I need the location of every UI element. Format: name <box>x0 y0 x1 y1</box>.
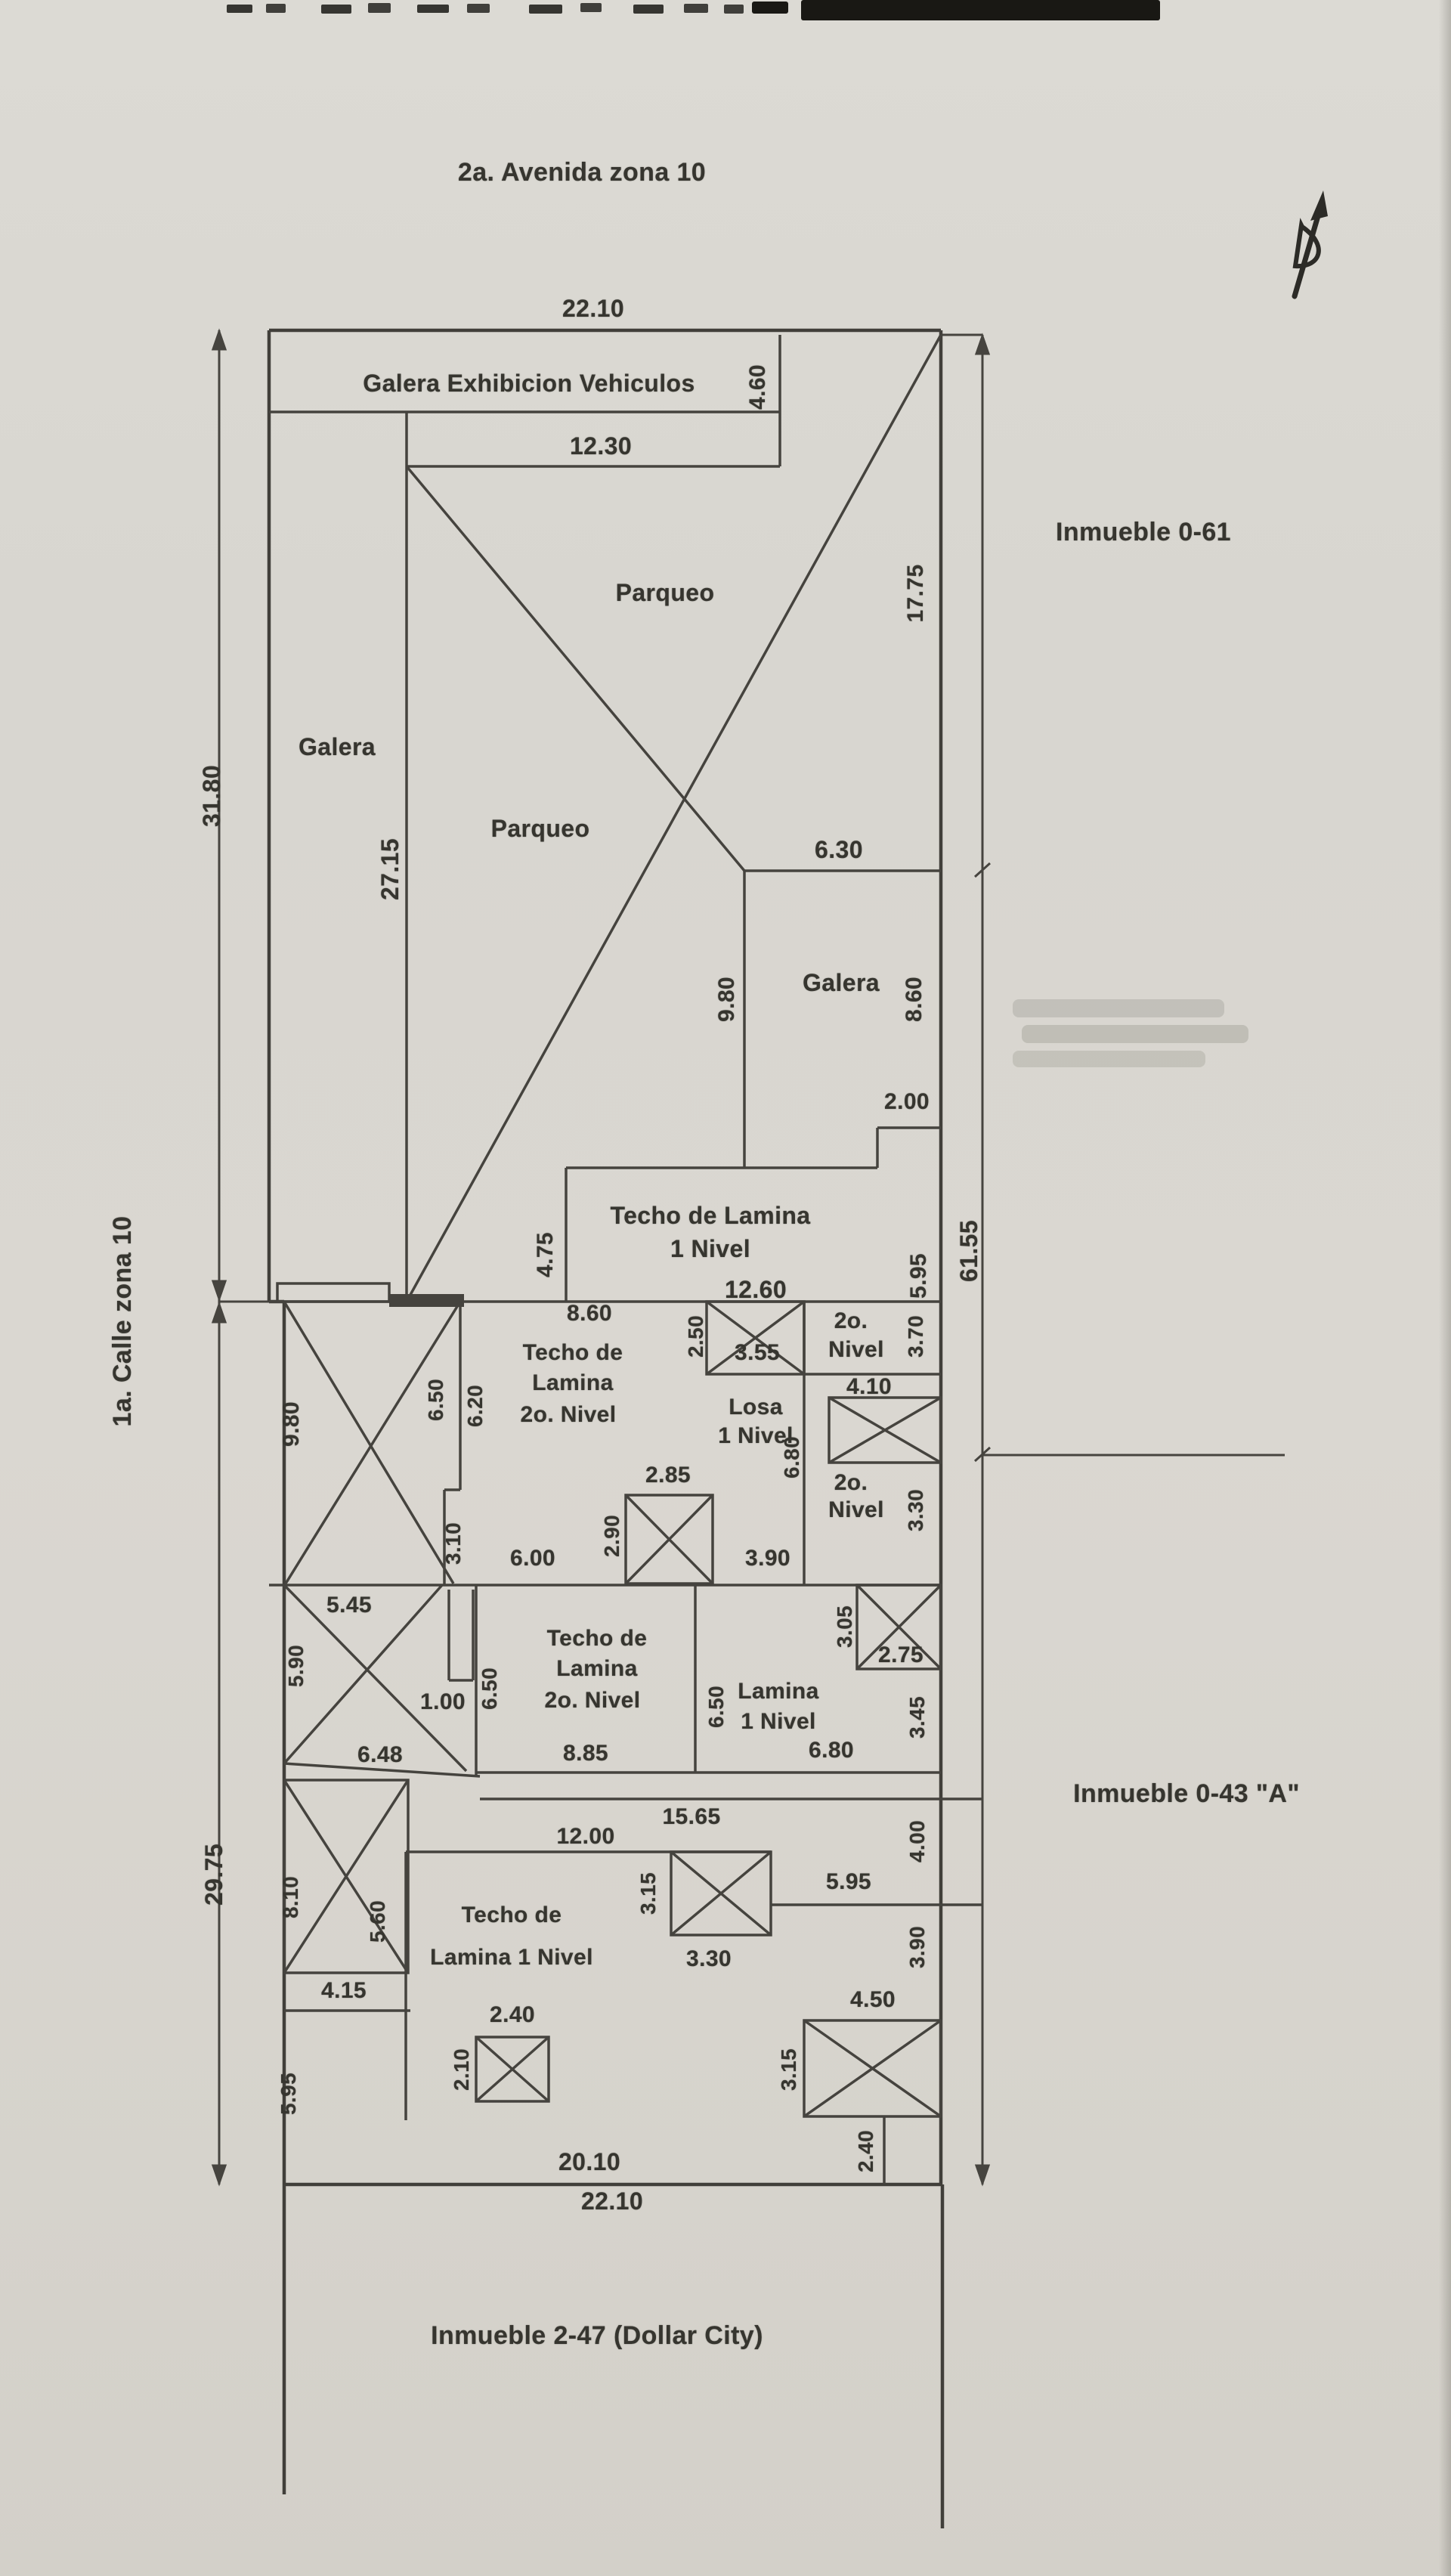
dim-6-50-b: 6.50 <box>479 1667 500 1710</box>
dim-3-90-right: 3.90 <box>907 1926 928 1968</box>
area-galera-mid: Galera <box>803 971 880 995</box>
dim-22-10-bottom: 22.10 <box>581 2189 643 2213</box>
street-top-label: 2a. Avenida zona 10 <box>458 159 706 185</box>
dim-4-15: 4.15 <box>321 1980 367 2002</box>
dim-27-15: 27.15 <box>378 838 402 900</box>
neighbor-right-upper: Inmueble 0-61 <box>1056 519 1231 545</box>
dim-12-60: 12.60 <box>725 1277 787 1302</box>
area-galera-exhibicion: Galera Exhibicion Vehiculos <box>363 371 695 395</box>
area-2o-nivel-1a: 2o. <box>834 1310 868 1333</box>
dim-6-30: 6.30 <box>815 838 863 862</box>
dim-17-75: 17.75 <box>905 564 927 622</box>
dim-9-80-galera: 9.80 <box>716 977 738 1022</box>
dim-1-00: 1.00 <box>420 1691 466 1714</box>
area-techo2-line1: Techo de <box>523 1342 623 1364</box>
dim-6-00: 6.00 <box>510 1547 555 1570</box>
dim-9-80-left: 9.80 <box>280 1401 303 1447</box>
area-techo2-line3: 2o. Nivel <box>521 1404 617 1426</box>
area-2o-nivel-1b: Nivel <box>828 1339 884 1361</box>
area-losa-line1: Losa <box>729 1396 783 1419</box>
dim-2-90: 2.90 <box>602 1515 623 1557</box>
neighbor-right-lower: Inmueble 0-43 "A" <box>1073 1781 1300 1807</box>
area-techo3-line1: Techo de <box>547 1627 648 1650</box>
dim-3-10: 3.10 <box>443 1522 464 1565</box>
area-techo4-line2: Lamina 1 Nivel <box>430 1946 593 1969</box>
area-techo3-line3: 2o. Nivel <box>545 1689 641 1712</box>
dim-2-40-b: 2.40 <box>855 2130 877 2172</box>
area-techo1-line1: Techo de Lamina <box>610 1203 810 1228</box>
dim-6-50-c: 6.50 <box>706 1686 727 1728</box>
dim-29-75: 29.75 <box>202 1844 226 1906</box>
dim-3-45: 3.45 <box>907 1696 928 1738</box>
dim-20-10: 20.10 <box>558 2150 620 2174</box>
dim-22-10-top: 22.10 <box>562 296 624 320</box>
area-techo2-line2: Lamina <box>532 1372 613 1395</box>
dim-2-40-a: 2.40 <box>490 2004 535 2026</box>
dim-8-85: 8.85 <box>563 1742 608 1765</box>
dim-4-50: 4.50 <box>850 1989 896 2011</box>
dim-61-55: 61.55 <box>957 1220 981 1282</box>
dim-2-85: 2.85 <box>645 1464 691 1487</box>
dim-3-30-b: 3.30 <box>686 1948 732 1971</box>
dim-5-95-b: 5.95 <box>826 1871 871 1893</box>
area-2o-nivel-2b: Nivel <box>828 1499 884 1522</box>
area-parqueo-1: Parqueo <box>616 581 715 605</box>
dim-5-45: 5.45 <box>326 1594 372 1617</box>
street-left-label: 1a. Calle zona 10 <box>110 1216 135 1427</box>
scanned-plan-page: 2a. Avenida zona 101a. Calle zona 10Inmu… <box>0 0 1451 2576</box>
dim-4-00: 4.00 <box>907 1820 928 1862</box>
dim-3-15-b: 3.15 <box>778 2048 800 2091</box>
dim-3-30: 3.30 <box>905 1489 927 1531</box>
dim-3-05: 3.05 <box>834 1605 855 1648</box>
dim-4-10: 4.10 <box>846 1376 892 1398</box>
dim-2-00: 2.00 <box>884 1091 930 1113</box>
dim-2-10: 2.10 <box>451 2048 472 2091</box>
dim-12-30: 12.30 <box>570 434 632 458</box>
dim-12-00: 12.00 <box>556 1825 614 1848</box>
dim-4-75: 4.75 <box>534 1232 557 1277</box>
dim-8-60-mid: 8.60 <box>567 1302 612 1325</box>
area-2o-nivel-2a: 2o. <box>834 1472 868 1494</box>
plan-labels: 2a. Avenida zona 101a. Calle zona 10Inmu… <box>0 0 1451 2576</box>
area-techo1-line2: 1 Nivel <box>670 1237 750 1261</box>
area-lamina1-line1: Lamina <box>738 1680 818 1703</box>
dim-3-70: 3.70 <box>905 1315 927 1358</box>
dim-8-10: 8.10 <box>280 1876 302 1918</box>
dim-15-65: 15.65 <box>662 1806 720 1828</box>
dim-3-55: 3.55 <box>735 1342 780 1364</box>
area-parqueo-2: Parqueo <box>491 816 590 841</box>
area-galera-left: Galera <box>299 735 376 759</box>
dim-6-50-a: 6.50 <box>425 1379 447 1421</box>
dim-6-80-b: 6.80 <box>809 1739 854 1762</box>
dim-6-48: 6.48 <box>357 1744 403 1766</box>
dim-5-90: 5.90 <box>286 1645 307 1687</box>
dim-31-80: 31.80 <box>200 765 224 827</box>
neighbor-bottom: Inmueble 2-47 (Dollar City) <box>431 2323 763 2348</box>
area-lamina1-line2: 1 Nivel <box>741 1711 816 1733</box>
dim-6-20: 6.20 <box>465 1385 486 1427</box>
dim-2-75: 2.75 <box>878 1644 924 1667</box>
dim-5-95-right: 5.95 <box>908 1253 930 1299</box>
dim-5-95-left: 5.95 <box>278 2073 299 2115</box>
area-techo3-line2: Lamina <box>556 1658 637 1680</box>
dim-8-60-galera: 8.60 <box>903 977 926 1022</box>
dim-3-15-a: 3.15 <box>638 1872 659 1915</box>
area-techo4-line1: Techo de <box>462 1904 562 1927</box>
dim-2-50: 2.50 <box>685 1315 707 1358</box>
dim-6-80-losa: 6.80 <box>781 1436 803 1478</box>
dim-5-60: 5.60 <box>367 1900 388 1943</box>
dim-3-90-mid: 3.90 <box>745 1547 790 1570</box>
dim-4-60: 4.60 <box>747 364 769 410</box>
